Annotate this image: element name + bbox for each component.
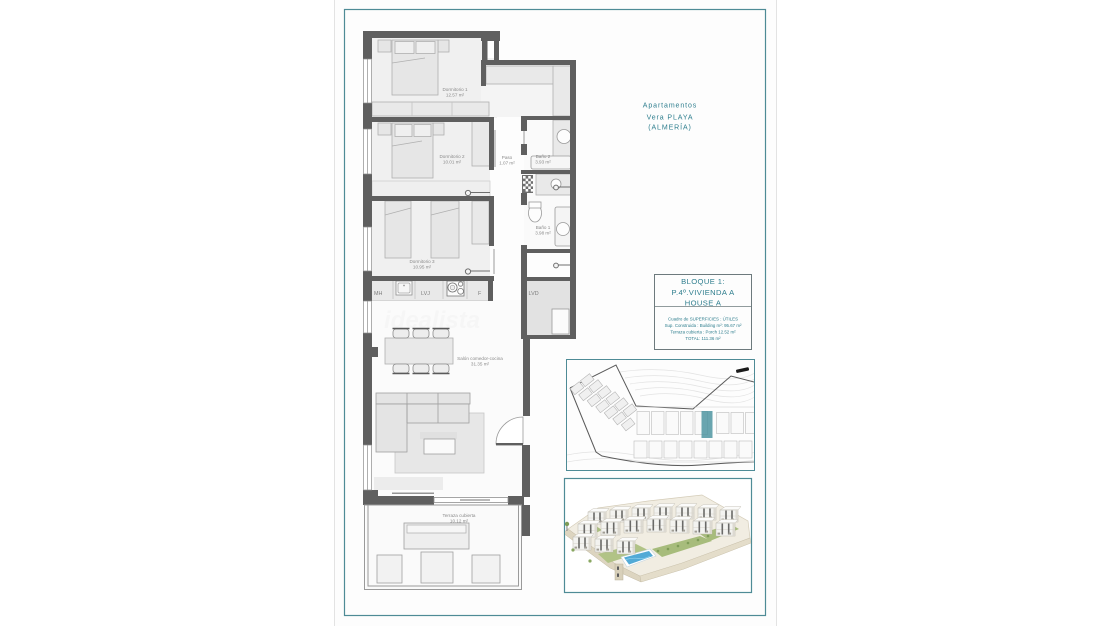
svg-text:Dormitorio 3: Dormitorio 3 (409, 259, 434, 264)
svg-text:Vera PLAYA: Vera PLAYA (647, 115, 694, 122)
svg-text:P.4º.VIVIENDA A: P.4º.VIVIENDA A (671, 288, 735, 297)
svg-text:Terraza cubierta: Terraza cubierta (443, 513, 476, 518)
svg-text:MH: MH (374, 291, 382, 297)
svg-text:1.07 m²: 1.07 m² (499, 161, 515, 166)
svg-text:3.93 m²: 3.93 m² (535, 160, 551, 165)
svg-text:Apartamentos: Apartamentos (643, 103, 697, 110)
svg-text:LVJ: LVJ (421, 291, 430, 297)
svg-text:Terraza cubierta : Porch 12.5: Terraza cubierta : Porch 12.52 m² (670, 330, 736, 335)
svg-text:Dormitorio 2: Dormitorio 2 (439, 154, 464, 159)
svg-text:Salón comedor-cocina: Salón comedor-cocina (457, 356, 503, 361)
svg-text:12.57 m²: 12.57 m² (446, 93, 465, 98)
svg-text:10.95 m²: 10.95 m² (413, 265, 432, 270)
svg-text:Dormitorio 1: Dormitorio 1 (442, 87, 467, 92)
svg-text:LVD: LVD (529, 291, 539, 297)
svg-text:HOUSE A: HOUSE A (685, 299, 722, 308)
svg-text:10.01 m²: 10.01 m² (443, 160, 462, 165)
svg-text:Paso: Paso (502, 155, 513, 160)
svg-text:3.98 m²: 3.98 m² (535, 231, 551, 236)
svg-text:10.12 m²: 10.12 m² (450, 519, 469, 524)
svg-text:Baño 2: Baño 2 (536, 154, 551, 159)
svg-text:Baño 1: Baño 1 (536, 225, 551, 230)
svg-text:31.35 m²: 31.35 m² (471, 362, 490, 367)
svg-text:TOTAL: 111.36 m²: TOTAL: 111.36 m² (685, 336, 721, 341)
svg-text:Cuadro de SUPERFICIES : ÚTILES: Cuadro de SUPERFICIES : ÚTILES (668, 317, 738, 322)
svg-text:Sup. Construida : Building m²: Sup. Construida : Building m²: 95.67 m² (665, 323, 742, 328)
svg-text:BLOQUE 1:: BLOQUE 1: (681, 277, 725, 286)
svg-text:(ALMERÍA): (ALMERÍA) (648, 123, 692, 132)
